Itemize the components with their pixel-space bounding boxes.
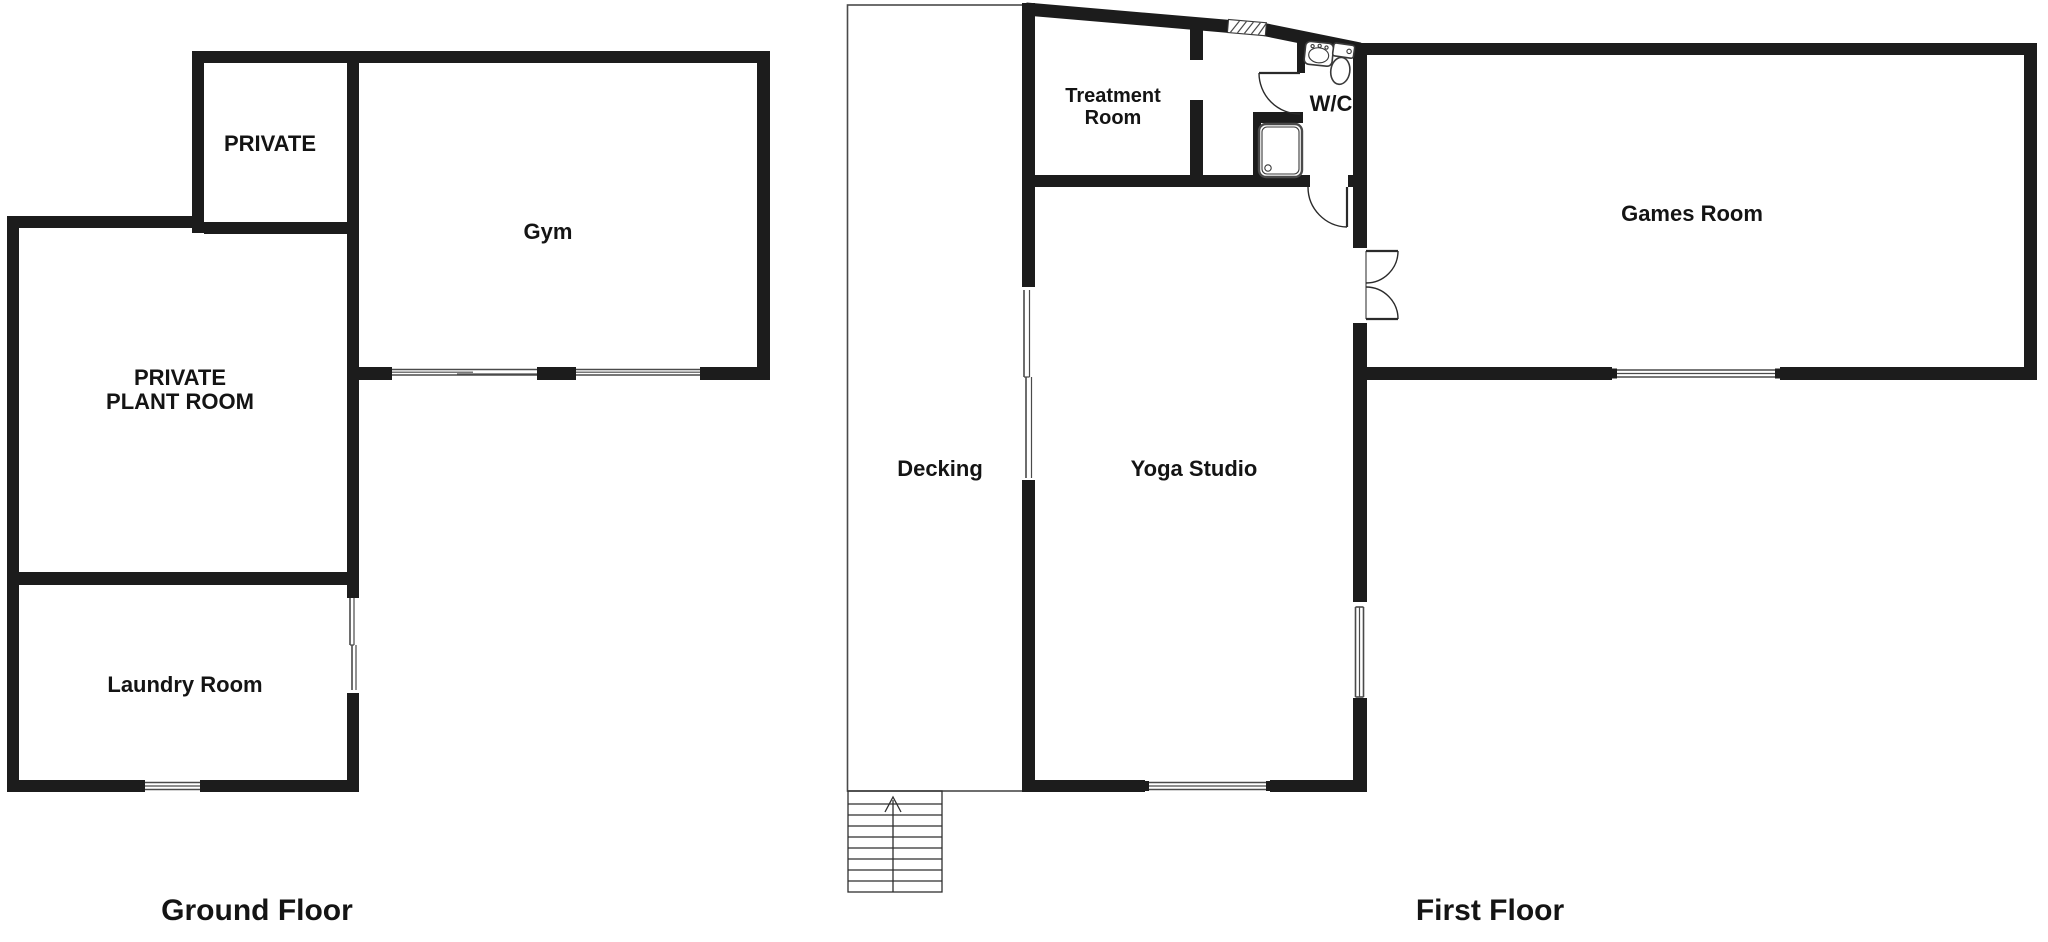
label-treatment-line2: Room xyxy=(1085,107,1142,129)
decking-outline xyxy=(848,5,1028,791)
wall-games-bottom-right xyxy=(1780,367,2037,380)
wall-private-left xyxy=(192,51,204,233)
gym-window-left xyxy=(392,367,537,380)
wall-gym-bottom-stub-right xyxy=(700,367,770,380)
ground-floor-plan: PRIVATE Gym PRIVATE PLANT ROOM Laundry R… xyxy=(7,51,770,927)
wall-right-vertical-lower xyxy=(347,693,359,792)
label-plant-line1: PRIVATE xyxy=(134,365,226,390)
yoga-door xyxy=(1308,187,1347,227)
staircase xyxy=(848,791,942,892)
first-floor-plan: Treatment Room W/C Games Room Decking Yo… xyxy=(848,3,2038,927)
gym-window-right xyxy=(576,367,700,380)
wall-yoga-left-lower xyxy=(1022,480,1035,792)
wall-dividing xyxy=(19,572,347,585)
wall-games-top xyxy=(1353,43,2037,55)
wall-gym-right xyxy=(757,51,770,380)
label-laundry: Laundry Room xyxy=(107,672,262,697)
toilet-icon xyxy=(1329,43,1355,86)
wall-treatment-partition-upper xyxy=(1190,26,1203,60)
double-doors xyxy=(1366,251,1398,319)
wall-private-bottom xyxy=(204,222,347,234)
floorplan-page: PRIVATE Gym PRIVATE PLANT ROOM Laundry R… xyxy=(0,0,2048,942)
wall-games-left-mid xyxy=(1353,323,1367,602)
label-private: PRIVATE xyxy=(224,131,316,156)
yoga-right-window xyxy=(1353,602,1367,698)
wall-yoga-left-upper xyxy=(1022,3,1035,287)
treatment-top-window xyxy=(1227,20,1266,36)
label-games: Games Room xyxy=(1621,201,1763,226)
wall-games-left-lower xyxy=(1353,698,1367,792)
wall-laundry-bottom-left xyxy=(7,780,145,792)
wall-games-right xyxy=(2024,43,2037,380)
label-gym: Gym xyxy=(524,219,573,244)
wall-laundry-bottom-right xyxy=(200,780,359,792)
wall-top xyxy=(192,51,770,63)
first-floor-title: First Floor xyxy=(1416,894,1565,927)
wall-plant-left xyxy=(7,216,19,792)
yoga-bottom-window xyxy=(1145,780,1270,792)
wall-games-left-upper xyxy=(1353,43,1367,248)
label-decking: Decking xyxy=(897,456,983,481)
wall-right-vertical-upper xyxy=(347,51,359,598)
wall-slanted-left xyxy=(1026,9,1230,27)
games-bottom-window xyxy=(1612,367,1780,380)
shower-tray xyxy=(1259,124,1302,177)
wall-plant-top xyxy=(7,216,204,228)
label-yoga: Yoga Studio xyxy=(1131,456,1258,481)
wall-treatment-partition-lower xyxy=(1190,100,1203,187)
first-floor-windows xyxy=(1022,287,1780,792)
label-treatment-line1: Treatment xyxy=(1065,85,1161,107)
laundry-bottom-window xyxy=(145,780,200,792)
floor-plan-canvas: PRIVATE Gym PRIVATE PLANT ROOM Laundry R… xyxy=(0,0,2048,942)
wc-door xyxy=(1259,73,1300,114)
wall-gym-bottom-pier xyxy=(537,367,576,380)
label-wc: W/C xyxy=(1310,91,1353,116)
laundry-right-window xyxy=(347,598,359,693)
ground-floor-title: Ground Floor xyxy=(161,894,353,927)
wall-yoga-bottom-right xyxy=(1270,780,1367,792)
wall-gym-bottom-stub-left xyxy=(347,367,392,380)
yoga-left-window-upper xyxy=(1022,287,1035,480)
label-plant-line2: PLANT ROOM xyxy=(106,389,254,414)
wall-yoga-bottom-left xyxy=(1022,780,1145,792)
sink-icon xyxy=(1304,41,1334,67)
first-floor-walls xyxy=(1022,3,2037,792)
wall-games-bottom-left xyxy=(1367,367,1612,380)
